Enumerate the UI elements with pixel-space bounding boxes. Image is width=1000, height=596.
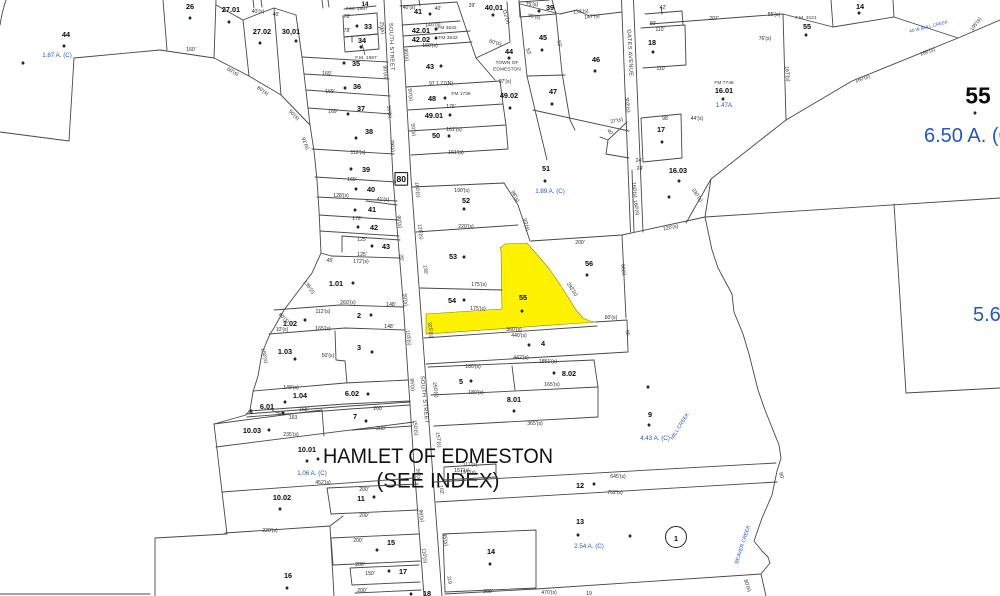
svg-text:220'(s): 220'(s) [458,224,474,230]
svg-text:41: 41 [368,205,376,214]
svg-text:440'(s): 440'(s) [511,333,527,339]
svg-text:55'(s): 55'(s) [768,12,781,18]
svg-text:8.02: 8.02 [562,369,576,378]
svg-text:37: 37 [357,104,365,113]
svg-text:40: 40 [367,185,375,194]
svg-text:75'(s): 75'(s) [526,2,539,8]
svg-text:112'(s): 112'(s) [350,150,365,156]
svg-text:169': 169' [347,177,356,183]
svg-text:98: 98 [662,116,668,122]
svg-text:FM 3642: FM 3642 [438,35,458,41]
svg-text:36: 36 [353,82,361,91]
svg-text:169': 169' [325,89,334,95]
svg-text:52: 52 [462,196,470,205]
svg-text:169': 169' [328,109,337,115]
svg-text:5.60: 5.60 [973,304,1000,326]
svg-text:6.02: 6.02 [345,389,359,398]
svg-text:49.01: 49.01 [425,111,443,120]
svg-text:160': 160' [186,47,195,53]
svg-text:150': 150' [365,571,374,577]
svg-text:78': 78' [344,14,351,20]
svg-text:3: 3 [357,343,361,352]
svg-text:41'(s): 41'(s) [377,197,390,203]
svg-text:42: 42 [370,223,378,232]
svg-text:5: 5 [459,377,463,386]
svg-text:8: 8 [249,409,253,416]
svg-text:9: 9 [648,410,652,419]
svg-text:200': 200' [376,426,385,432]
svg-text:165': 165' [299,407,308,413]
svg-text:90': 90' [650,21,657,27]
svg-text:10'(s): 10'(s) [276,327,289,333]
svg-text:200': 200' [483,589,492,595]
svg-text:119: 119 [445,575,452,584]
svg-text:235'(s): 235'(s) [283,432,299,438]
svg-text:190'(s): 190'(s) [454,188,470,194]
svg-text:4.43 A. (C): 4.43 A. (C) [640,435,670,442]
svg-text:24': 24' [637,166,644,172]
svg-text:50'(s): 50'(s) [322,353,335,359]
svg-text:51: 51 [542,164,550,173]
svg-text:442'(s): 442'(s) [513,355,529,361]
svg-text:176': 176' [446,104,455,110]
svg-text:EDMESTON: EDMESTON [493,67,521,73]
svg-text:60'(s): 60'(s) [605,315,618,321]
svg-text:17: 17 [399,567,407,576]
svg-text:150'(s): 150'(s) [422,43,438,49]
svg-text:175'(s): 175'(s) [471,282,487,288]
svg-text:175'(s): 175'(s) [470,306,486,312]
svg-text:11: 11 [357,494,365,503]
svg-text:148': 148' [386,302,395,308]
svg-text:148'(s): 148'(s) [283,385,299,391]
svg-text:97 1.77(N): 97 1.77(N) [429,81,453,87]
svg-text:128'(s): 128'(s) [333,193,349,199]
svg-text:110': 110' [656,66,665,72]
svg-text:220'(s): 220'(s) [262,528,278,534]
svg-text:35: 35 [352,59,360,68]
svg-text:33: 33 [364,22,372,31]
svg-text:26: 26 [186,2,194,11]
svg-text:180'(s): 180'(s) [465,364,481,370]
svg-text:56: 56 [585,259,593,268]
svg-text:76'(s): 76'(s) [759,36,772,42]
svg-text:165'(s): 165'(s) [315,326,331,332]
svg-text:16: 16 [284,571,292,580]
svg-text:260'(s): 260'(s) [340,300,356,306]
svg-text:112'(s): 112'(s) [315,309,330,315]
svg-text:200': 200' [575,240,584,246]
svg-text:78': 78' [344,28,351,34]
svg-text:40'(s): 40'(s) [403,5,416,11]
svg-text:2: 2 [357,311,361,320]
svg-text:55: 55 [519,293,527,302]
svg-text:6.50 A. (C): 6.50 A. (C) [924,125,1000,147]
svg-text:18: 18 [648,38,656,47]
svg-text:15: 15 [387,538,395,547]
svg-text:18: 18 [423,589,431,596]
svg-text:1: 1 [674,534,678,543]
svg-text:645'(s): 645'(s) [610,474,626,480]
svg-text:10.03: 10.03 [243,426,261,435]
svg-text:46: 46 [592,55,600,64]
svg-text:47: 47 [549,87,557,96]
svg-text:42': 42' [660,5,667,11]
svg-text:125': 125' [357,237,366,243]
svg-text:55: 55 [803,22,811,31]
svg-text:207': 207' [709,16,718,22]
svg-text:1.47A: 1.47A [716,102,733,109]
svg-text:148': 148' [384,324,393,330]
svg-text:200': 200' [353,538,362,544]
svg-text:110': 110' [655,27,664,33]
svg-text:43: 43 [382,242,390,251]
svg-text:27.02: 27.02 [253,27,271,36]
svg-text:F.M. 1697: F.M. 1697 [346,6,368,12]
svg-text:7: 7 [353,412,357,421]
svg-text:45': 45' [327,258,334,264]
svg-text:54: 54 [448,296,457,305]
svg-text:157'(s): 157'(s) [454,468,470,474]
svg-text:2.54 A. (C): 2.54 A. (C) [574,543,604,550]
svg-text:1.87 A. (C): 1.87 A. (C) [42,52,72,59]
svg-text:34: 34 [358,36,367,45]
svg-text:39: 39 [362,165,370,174]
svg-text:53: 53 [449,252,457,261]
svg-text:FM 1736: FM 1736 [451,91,471,97]
svg-text:45: 45 [539,33,547,42]
svg-text:13: 13 [576,517,584,526]
svg-text:24': 24' [636,158,643,164]
svg-text:470'(s): 470'(s) [541,590,557,596]
svg-text:8.01: 8.01 [507,395,521,404]
svg-text:48: 48 [428,94,436,103]
svg-text:TOWN OF: TOWN OF [495,60,518,66]
svg-text:43: 43 [426,62,434,71]
svg-text:452'(s): 452'(s) [315,480,331,486]
svg-text:38: 38 [365,127,373,136]
svg-text:165'(s): 165'(s) [544,382,560,388]
svg-text:39': 39' [469,3,476,9]
svg-text:14: 14 [856,2,865,11]
svg-text:161'(s): 161'(s) [446,127,462,133]
svg-text:44: 44 [505,47,514,56]
svg-text:169': 169' [322,71,331,77]
svg-text:200': 200' [359,487,368,493]
svg-text:14: 14 [487,547,496,556]
svg-text:97'(s): 97'(s) [499,79,512,85]
svg-text:1851'(s): 1851'(s) [539,359,558,365]
svg-text:163: 163 [289,415,298,421]
svg-text:49.02: 49.02 [500,91,518,100]
svg-text:1.89 A. (C): 1.89 A. (C) [535,188,565,195]
svg-text:F.M. 3121: F.M. 3121 [795,15,817,21]
svg-text:50: 50 [432,131,440,140]
svg-text:40'(s): 40'(s) [252,9,265,15]
svg-text:1.04: 1.04 [293,391,308,400]
svg-text:6.01: 6.01 [260,402,274,411]
svg-text:44'(s): 44'(s) [691,116,704,122]
svg-text:30,01: 30,01 [282,27,300,36]
svg-text:1.01: 1.01 [329,279,343,288]
svg-text:19: 19 [586,591,592,596]
svg-text:16.01: 16.01 [715,86,733,95]
svg-text:44: 44 [62,30,71,39]
svg-text:200': 200' [355,562,364,568]
svg-text:180'(s): 180'(s) [468,390,484,396]
svg-text:1.03: 1.03 [278,347,292,356]
svg-text:17: 17 [657,125,665,134]
svg-text:90: 90 [624,330,631,337]
svg-text:40,01: 40,01 [485,3,503,12]
svg-text:40': 40' [273,12,280,18]
svg-text:172'(s): 172'(s) [353,259,369,265]
svg-text:752'(s): 752'(s) [607,490,623,496]
svg-text:125': 125' [357,252,366,258]
svg-text:365'(s): 365'(s) [527,421,543,427]
svg-text:161'(s): 161'(s) [448,150,464,156]
svg-text:80: 80 [397,174,407,184]
svg-text:10.01: 10.01 [298,445,316,454]
svg-text:16.03: 16.03 [669,166,687,175]
svg-text:55: 55 [965,83,991,109]
svg-text:172': 172' [352,216,361,222]
svg-text:27.01: 27.01 [222,5,240,14]
svg-text:12: 12 [576,481,584,490]
svg-text:200': 200' [359,513,368,519]
svg-text:200': 200' [357,588,366,594]
svg-text:25': 25' [398,254,405,261]
svg-text:10.02: 10.02 [273,493,291,502]
svg-text:40': 40' [435,6,442,12]
svg-text:200': 200' [373,406,382,412]
svg-text:1.06 A. (C): 1.06 A. (C) [297,470,327,477]
